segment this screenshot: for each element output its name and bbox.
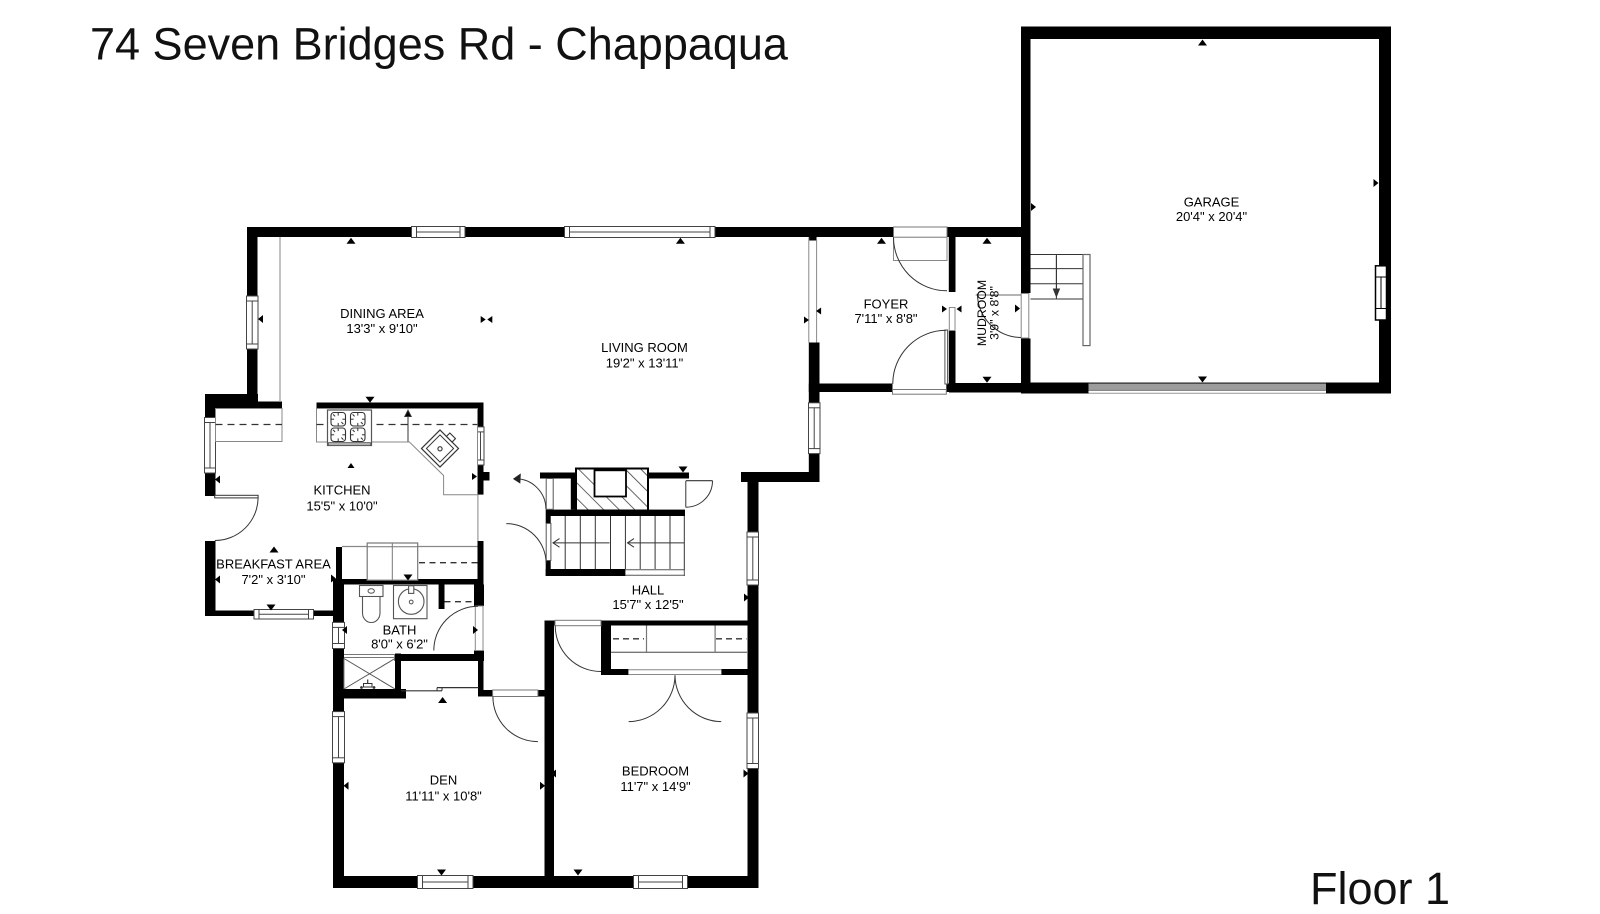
svg-text:8'0" x 6'2": 8'0" x 6'2" [371,637,428,652]
svg-text:3'9" x 8'8": 3'9" x 8'8" [988,286,1002,340]
svg-text:7'2" x 3'10": 7'2" x 3'10" [241,572,305,587]
svg-text:BREAKFAST AREA: BREAKFAST AREA [216,557,331,572]
svg-text:7'11" x 8'8": 7'11" x 8'8" [854,311,917,326]
svg-text:13'3" x 9'10": 13'3" x 9'10" [346,321,418,336]
svg-text:BEDROOM: BEDROOM [622,764,689,779]
svg-text:LIVING ROOM: LIVING ROOM [601,340,688,355]
svg-text:11'7" x 14'9": 11'7" x 14'9" [620,779,691,794]
svg-text:15'7" x 12'5": 15'7" x 12'5" [612,597,684,612]
svg-text:74 Seven Bridges Rd - Chappaqu: 74 Seven Bridges Rd - Chappaqua [90,19,789,70]
svg-text:20'4" x 20'4": 20'4" x 20'4" [1176,209,1248,224]
svg-text:Floor 1: Floor 1 [1310,863,1450,914]
svg-text:GARAGE: GARAGE [1184,195,1240,210]
svg-text:BATH: BATH [383,623,417,638]
svg-text:FOYER: FOYER [864,297,909,312]
svg-text:19'2" x 13'11": 19'2" x 13'11" [606,356,684,371]
svg-text:11'11" x 10'8": 11'11" x 10'8" [405,789,482,804]
svg-text:HALL: HALL [632,583,665,598]
svg-text:KITCHEN: KITCHEN [313,483,370,498]
svg-text:DEN: DEN [430,773,457,788]
svg-text:DINING AREA: DINING AREA [340,306,424,321]
svg-text:15'5" x 10'0": 15'5" x 10'0" [306,499,378,514]
